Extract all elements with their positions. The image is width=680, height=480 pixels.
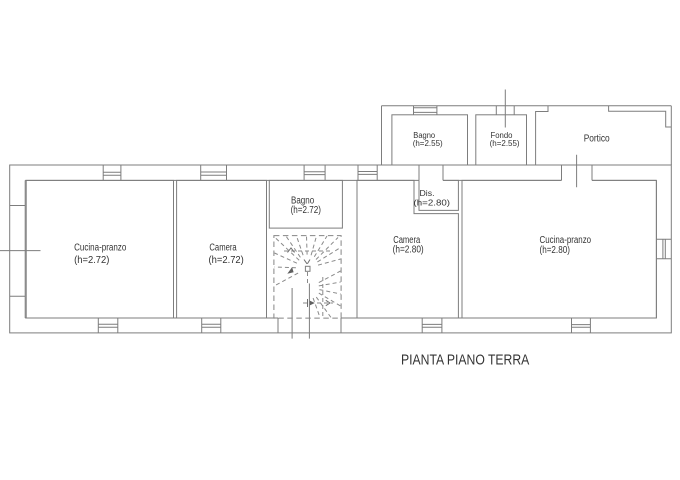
svg-text:Portico: Portico <box>584 134 610 145</box>
svg-text:(h=2.80): (h=2.80) <box>393 245 424 256</box>
svg-text:(h=2.55): (h=2.55) <box>490 138 520 148</box>
svg-text:Cucina-pranzo: Cucina-pranzo <box>74 242 127 253</box>
svg-text:PIANTA PIANO TERRA: PIANTA PIANO TERRA <box>401 353 530 369</box>
svg-text:(h=2.72): (h=2.72) <box>74 255 109 266</box>
svg-text:Camera: Camera <box>209 242 237 253</box>
svg-text:(h=2.72): (h=2.72) <box>209 255 244 266</box>
svg-text:(h=2.80): (h=2.80) <box>540 245 570 256</box>
svg-text:(h=2.55): (h=2.55) <box>413 138 443 148</box>
svg-text:(h=2.72): (h=2.72) <box>291 205 321 216</box>
svg-text:(h=2.80): (h=2.80) <box>414 198 451 208</box>
